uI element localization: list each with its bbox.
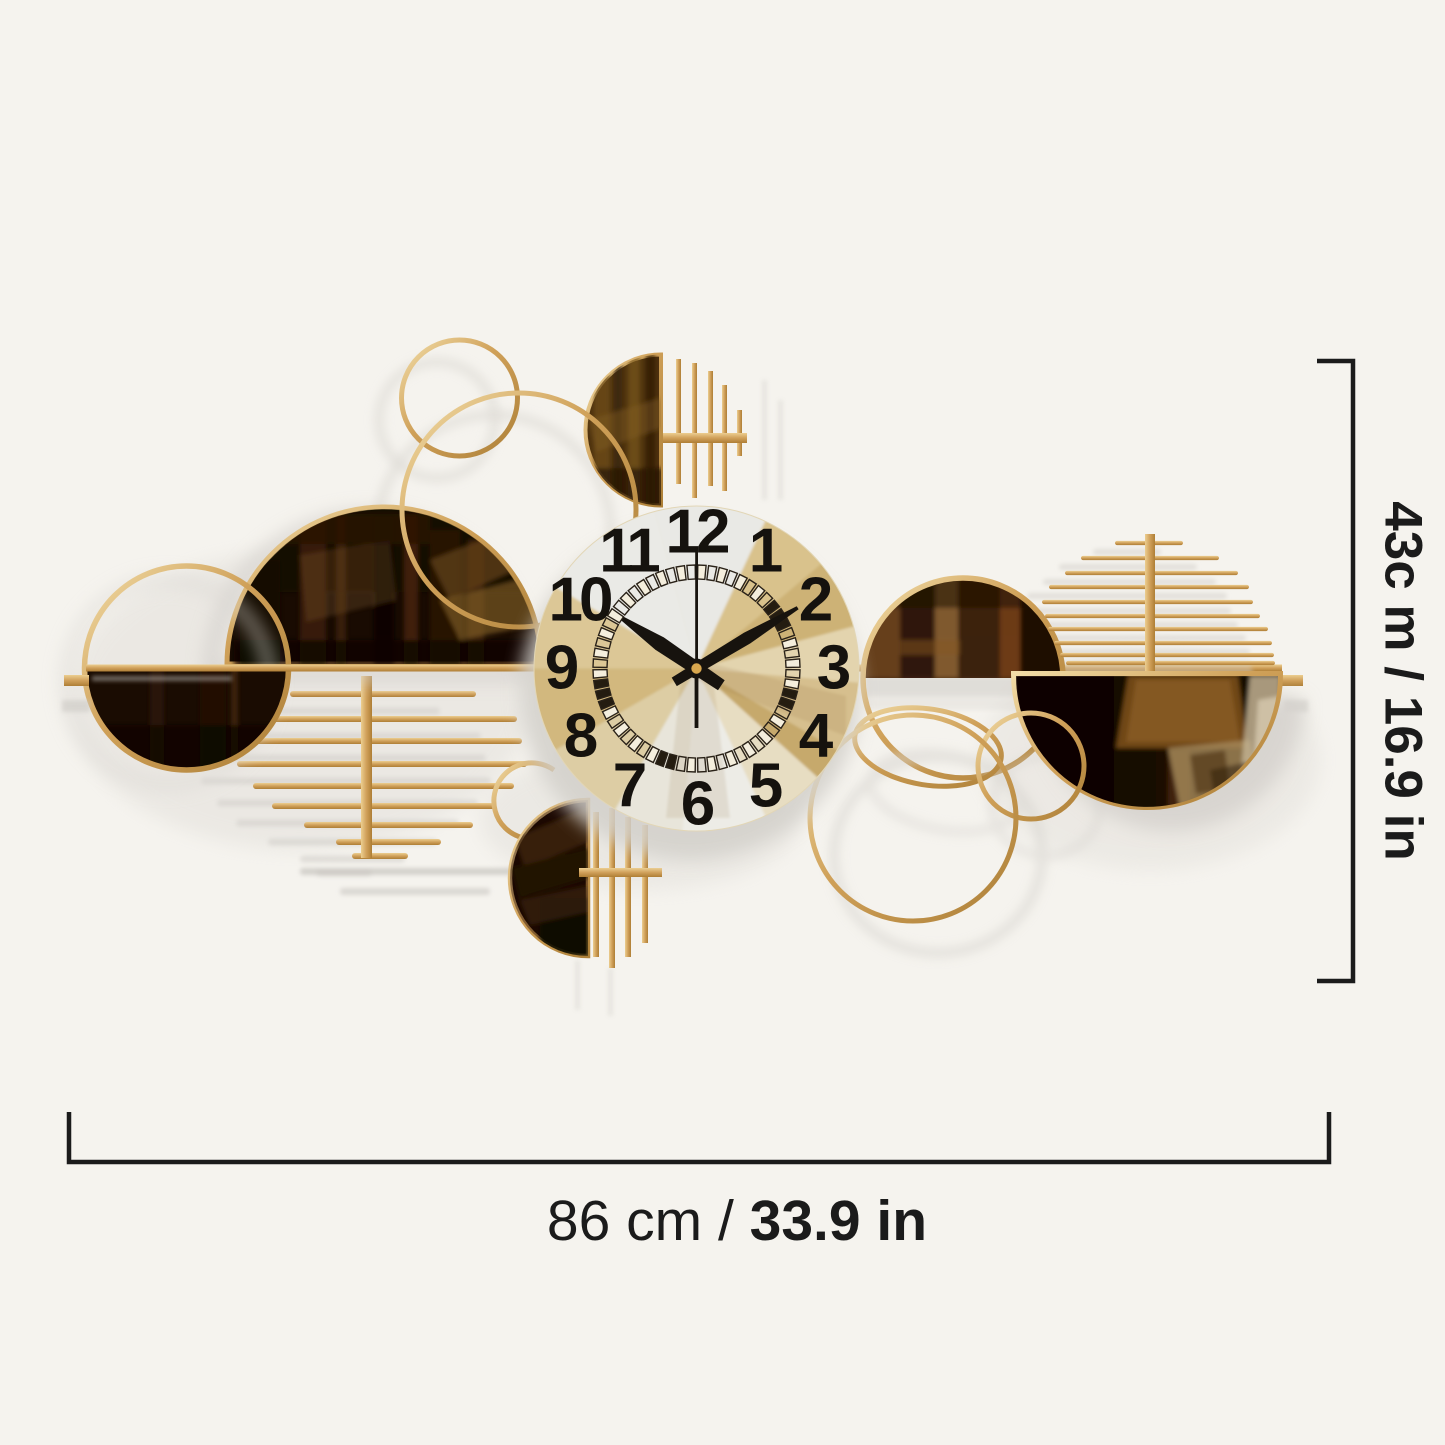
svg-text:2: 2 [799, 566, 831, 635]
svg-text:86 cm / 33.9 in: 86 cm / 33.9 in [547, 1189, 927, 1253]
svg-text:8: 8 [564, 702, 597, 771]
svg-text:9: 9 [545, 634, 578, 703]
svg-text:11: 11 [599, 517, 659, 586]
svg-text:3: 3 [817, 634, 850, 703]
svg-text:7: 7 [613, 752, 645, 821]
svg-text:43c m / 16.9 in: 43c m / 16.9 in [1374, 501, 1433, 860]
svg-text:4: 4 [799, 702, 834, 771]
svg-text:1: 1 [749, 517, 782, 586]
svg-text:6: 6 [681, 770, 714, 839]
svg-text:5: 5 [749, 752, 782, 821]
